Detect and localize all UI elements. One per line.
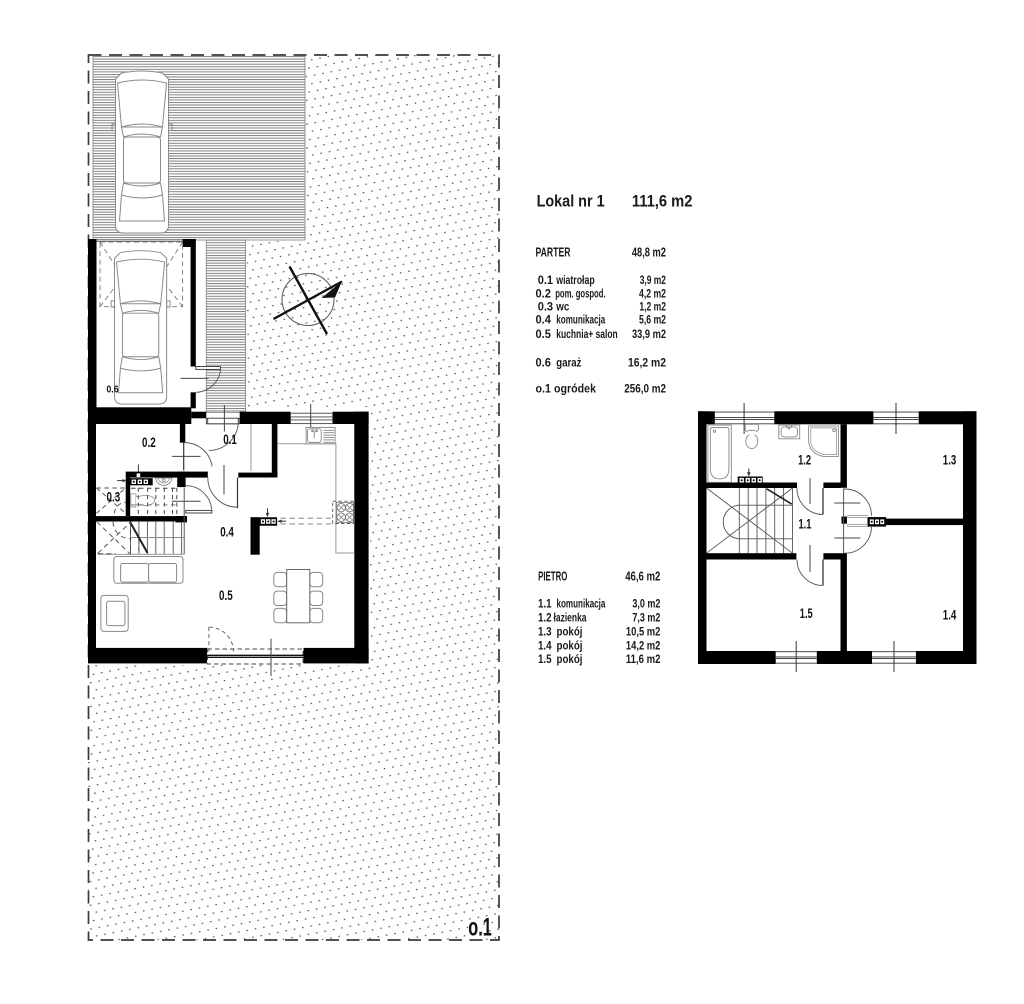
svg-text:pom. gospod.: pom. gospod. <box>555 288 605 300</box>
svg-text:256,0 m2: 256,0 m2 <box>624 384 666 396</box>
svg-text:1.5: 1.5 <box>538 654 552 666</box>
svg-text:111,6 m2: 111,6 m2 <box>632 192 693 210</box>
svg-text:o.1: o.1 <box>536 384 552 396</box>
svg-text:1.1: 1.1 <box>799 517 812 532</box>
svg-text:10,5 m2: 10,5 m2 <box>626 626 661 638</box>
svg-text:0.1: 0.1 <box>223 432 237 447</box>
svg-text:garaż: garaż <box>556 357 581 369</box>
svg-text:1.4: 1.4 <box>943 607 957 622</box>
svg-text:16,2 m2: 16,2 m2 <box>628 357 666 369</box>
svg-text:0.6: 0.6 <box>536 357 551 369</box>
svg-text:komunikacja: komunikacja <box>556 315 605 327</box>
svg-text:ogródek: ogródek <box>554 384 597 396</box>
svg-text:0.3: 0.3 <box>107 490 121 505</box>
svg-text:wiatrołap: wiatrołap <box>556 275 595 287</box>
svg-text:11,6 m2: 11,6 m2 <box>626 654 661 666</box>
svg-text:0.3: 0.3 <box>538 301 553 313</box>
svg-text:33,9 m2: 33,9 m2 <box>632 329 666 341</box>
svg-text:5,6 m2: 5,6 m2 <box>639 315 666 327</box>
svg-text:o.1: o.1 <box>468 914 492 942</box>
svg-text:wc: wc <box>555 301 569 313</box>
svg-text:łazienka: łazienka <box>554 613 587 625</box>
svg-text:1.4: 1.4 <box>538 640 552 652</box>
svg-text:0.1: 0.1 <box>538 275 554 287</box>
svg-text:3,9 m2: 3,9 m2 <box>640 275 666 287</box>
svg-text:0.2: 0.2 <box>536 288 551 300</box>
svg-text:pokój: pokój <box>557 654 583 666</box>
svg-text:0.5: 0.5 <box>219 588 233 603</box>
svg-text:pokój: pokój <box>557 626 583 638</box>
svg-text:1,2 m2: 1,2 m2 <box>639 301 666 313</box>
svg-text:48,8 m2: 48,8 m2 <box>632 246 666 260</box>
svg-text:kuchnia+ salon: kuchnia+ salon <box>556 329 617 341</box>
svg-text:3,0 m2: 3,0 m2 <box>632 599 660 611</box>
svg-text:PIETRO: PIETRO <box>538 570 567 584</box>
svg-text:1.1: 1.1 <box>538 599 552 611</box>
svg-text:0.4: 0.4 <box>536 315 552 327</box>
svg-text:1.5: 1.5 <box>800 606 813 621</box>
svg-text:1.2: 1.2 <box>798 453 811 468</box>
svg-text:1.3: 1.3 <box>943 452 957 467</box>
svg-text:Lokal nr 1: Lokal nr 1 <box>537 192 605 210</box>
svg-text:1.3: 1.3 <box>538 626 552 638</box>
svg-text:4,2 m2: 4,2 m2 <box>639 288 666 300</box>
svg-text:pokój: pokój <box>557 640 583 652</box>
svg-text:0.6: 0.6 <box>107 384 119 396</box>
svg-text:komunikacja: komunikacja <box>557 599 606 611</box>
svg-text:0.4: 0.4 <box>220 525 234 540</box>
svg-text:0.5: 0.5 <box>536 329 552 341</box>
svg-text:1.2: 1.2 <box>538 613 552 625</box>
svg-text:0.2: 0.2 <box>142 435 156 450</box>
svg-text:46,6 m2: 46,6 m2 <box>625 570 660 584</box>
svg-text:14,2 m2: 14,2 m2 <box>626 640 661 652</box>
svg-text:7,3 m2: 7,3 m2 <box>632 613 660 625</box>
svg-text:PARTER: PARTER <box>536 246 571 260</box>
